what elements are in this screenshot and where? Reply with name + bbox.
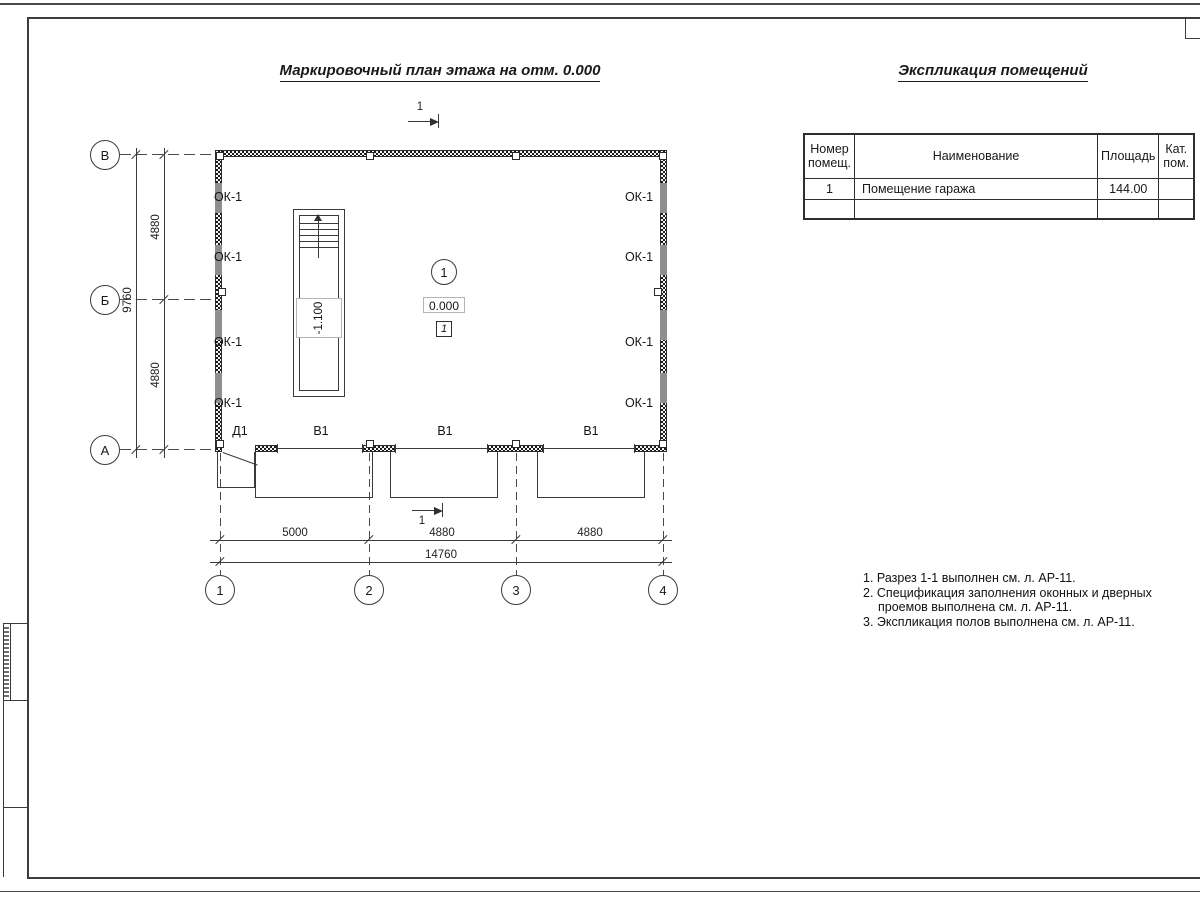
dim-value: 4880 [150, 207, 162, 247]
cell-room-area: 144.00 [1098, 178, 1159, 199]
column-marker [659, 152, 667, 160]
dim-value: 14760 [416, 549, 466, 561]
axis-bubble-b: Б [90, 285, 120, 315]
gate-mark-label: В1 [577, 424, 605, 438]
section-mark-number-bottom: 1 [414, 515, 430, 527]
axis-bubble-1: 1 [205, 575, 235, 605]
note-line: 2. Спецификация заполнения оконных и две… [863, 586, 1173, 601]
section-mark-number-top: 1 [412, 101, 428, 113]
axis-line-3 [516, 453, 517, 575]
dim-value: 5000 [275, 527, 315, 539]
cell-room-number: 1 [804, 178, 855, 199]
door-step [217, 452, 255, 488]
axis-line-4 [663, 453, 664, 575]
window-mark-label: ОК-1 [211, 396, 245, 410]
note-line: проемов выполнена см. л. АР-11. [863, 600, 1173, 615]
window-right-4 [660, 373, 667, 403]
note-line: 3. Экспликация полов выполнена см. л. АР… [863, 615, 1173, 630]
room-number-bubble: 1 [431, 259, 457, 285]
column-marker [512, 440, 520, 448]
drawing-notes: 1. Разрез 1-1 выполнен см. л. АР-11. 2. … [863, 571, 1173, 629]
axis-bubble-3: 3 [501, 575, 531, 605]
axis-bubble-2: 2 [354, 575, 384, 605]
frame-bottom [27, 877, 1200, 879]
margin-stamp-divider [10, 623, 11, 700]
explication-table: Номер помещ. Наименование Площадь Кат. п… [803, 133, 1195, 220]
stair-direction-line [318, 220, 319, 258]
stair-tread [300, 241, 338, 242]
column-marker [512, 152, 520, 160]
margin-stamp-row3 [3, 807, 27, 808]
gate-apron-2 [390, 452, 498, 498]
column-marker [659, 440, 667, 448]
axis-bubble-a: А [90, 435, 120, 465]
dim-line-v-total [136, 148, 137, 458]
stair-tread [300, 223, 338, 224]
stair-tread [300, 229, 338, 230]
dim-line-h-segments [210, 540, 672, 541]
gate-apron-3 [537, 452, 645, 498]
floor-type-mark: 1 [436, 321, 452, 337]
dim-line-v-segments [164, 148, 165, 458]
floor-level-label: 0.000 [423, 297, 465, 313]
section-mark-tick-bottom [442, 503, 443, 517]
axis-bubble-4: 4 [648, 575, 678, 605]
gate-mark-label: В1 [307, 424, 335, 438]
col-header-name: Наименование [855, 134, 1098, 178]
section-mark-tick-top [438, 114, 439, 128]
window-mark-label: ОК-1 [211, 335, 245, 349]
dim-value: 9760 [122, 280, 134, 320]
window-right-2 [660, 245, 667, 275]
gate-leaf-3 [543, 448, 635, 449]
col-header-category: Кат. пом. [1159, 134, 1194, 178]
pit-level-label: -1.100 [296, 298, 342, 338]
cell-room-name: Помещение гаража [855, 178, 1098, 199]
column-marker [654, 288, 662, 296]
dim-value: 4880 [570, 527, 610, 539]
stair-up-arrow-icon [314, 214, 322, 221]
sheet-bottom-edge [0, 891, 1200, 892]
door-mark-label: Д1 [226, 424, 254, 438]
window-right-1 [660, 183, 667, 213]
column-marker [216, 152, 224, 160]
frame-corner-box [1185, 17, 1200, 39]
wall-bottom-pier-1 [255, 445, 277, 452]
margin-stamp-row1 [3, 623, 27, 624]
stair-tread [300, 235, 338, 236]
drawing-sheet: Маркировочный план этажа на отм. 0.000 Э… [0, 0, 1200, 900]
stair-tread [300, 247, 338, 248]
dim-value: 4880 [150, 355, 162, 395]
sheet-top-edge [0, 3, 1200, 5]
col-header-area: Площадь [1098, 134, 1159, 178]
column-marker [366, 152, 374, 160]
dim-line-h-total [210, 562, 672, 563]
gate-leaf-1 [277, 448, 363, 449]
window-right-3 [660, 310, 667, 340]
explication-title: Экспликация помещений [803, 62, 1183, 82]
window-mark-label: ОК-1 [211, 250, 245, 264]
cell-room-category [1159, 178, 1194, 199]
frame-top [27, 17, 1200, 19]
table-row-empty [804, 199, 1194, 219]
window-mark-label: ОК-1 [622, 396, 656, 410]
gate-mark-label: В1 [431, 424, 459, 438]
column-marker [366, 440, 374, 448]
margin-stamp-row2 [3, 700, 27, 701]
table-row: 1 Помещение гаража 144.00 [804, 178, 1194, 199]
dim-value: 4880 [422, 527, 462, 539]
margin-stamp-vertical-text [4, 627, 9, 697]
gate-leaf-2 [395, 448, 488, 449]
window-mark-label: ОК-1 [622, 335, 656, 349]
plan-title: Маркировочный план этажа на отм. 0.000 [240, 62, 640, 82]
window-mark-label: ОК-1 [622, 250, 656, 264]
gate-apron-1 [255, 452, 373, 498]
column-marker [218, 288, 226, 296]
column-marker [216, 440, 224, 448]
wall-top [215, 150, 667, 157]
axis-line-b [120, 299, 218, 300]
col-header-room-number: Номер помещ. [804, 134, 855, 178]
note-line: 1. Разрез 1-1 выполнен см. л. АР-11. [863, 571, 1173, 586]
axis-bubble-v: В [90, 140, 120, 170]
window-mark-label: ОК-1 [211, 190, 245, 204]
frame-left [27, 17, 29, 878]
window-mark-label: ОК-1 [622, 190, 656, 204]
